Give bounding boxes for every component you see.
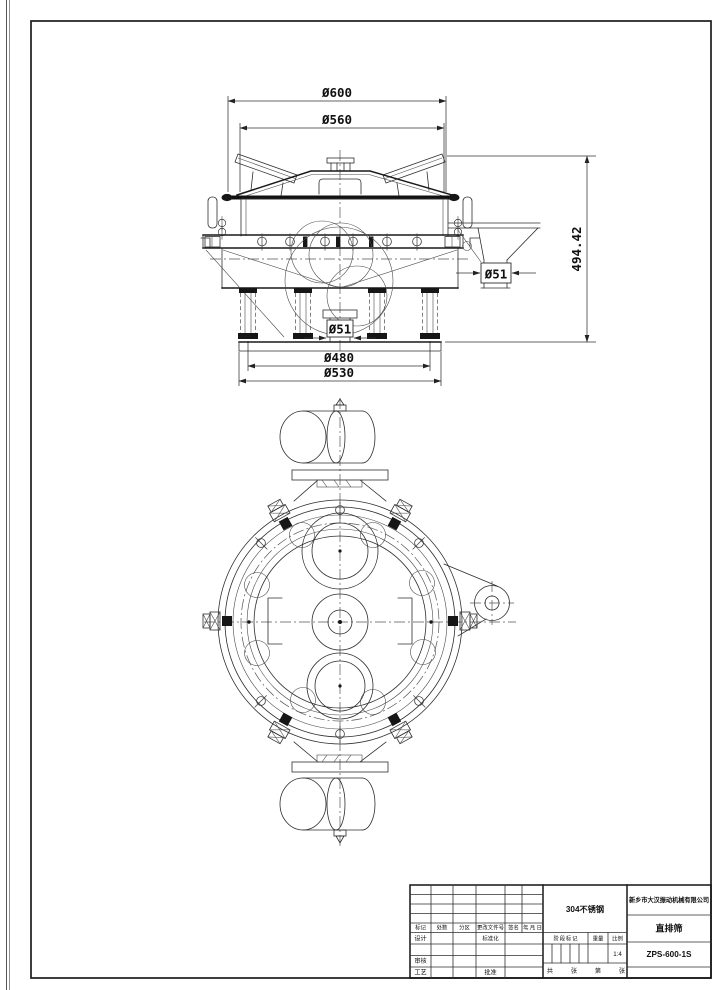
material-text: 304不锈钢 [566,904,604,914]
top-view [203,398,516,846]
rev-header-date: 年、月、日 [523,923,542,931]
drawing-number: ZPS-600-1S [646,950,692,959]
identity-block: 新乡市大汉振动机械有限公司 直排筛 ZPS-600-1S [627,895,711,967]
bottom-outlet: Ø51 [304,310,376,342]
side-clamp-right [454,197,479,247]
right-bracket-mark [398,598,412,644]
dim-overall-height: 494.42 [569,226,584,271]
title-block: 标记 处数 分区 更改文件号 签名 年、月、日 设计 标准化 审核 工艺 批准 … [410,885,711,978]
rev-header-mark: 标记 [415,923,426,931]
material-scale-block: 304不锈钢 阶段标记 重量 比例 1:4 共 张 第 张 [543,904,627,975]
dim-screen-frame: Ø560 [321,112,352,127]
dim-bottom-outlet: Ø51 [328,322,352,337]
rev-header-count: 处数 [437,923,448,931]
cad-drawing: Ø600 Ø560 494.42 Ø480 Ø530 [0,0,720,990]
rev-header-change-doc: 更改文件号 [477,923,505,931]
front-view: Ø600 Ø560 494.42 Ø480 Ø530 [201,85,596,386]
plan-motor-top [280,399,388,501]
label-scale: 比例 [612,934,623,942]
sheet-frame [7,0,712,990]
label-sheet-total-prefix: 共 [547,967,553,975]
label-approve: 批准 [484,969,496,977]
dim-base-outer: Ø530 [323,365,354,380]
plan-motor-bottom [280,742,388,843]
label-sheet-no-suffix: 张 [619,967,626,975]
dim-spring-circle: Ø480 [323,350,354,365]
label-sheet-total-suffix: 张 [571,967,578,975]
label-weight: 重量 [593,934,604,942]
rev-header-signature: 签名 [508,923,519,931]
rev-header-zone: 分区 [459,923,470,931]
label-design: 设计 [414,935,426,943]
label-standardization: 标准化 [482,934,499,942]
revision-table: 标记 处数 分区 更改文件号 签名 年、月、日 设计 标准化 审核 工艺 批准 [410,885,627,978]
label-stage-mark: 阶段标记 [554,934,579,942]
left-bracket-mark [268,598,282,644]
dim-lid-outer: Ø600 [321,85,352,100]
label-process: 工艺 [414,969,426,977]
dim-side-outlet: Ø51 [484,267,508,282]
company-name: 新乡市大汉振动机械有限公司 [629,895,709,904]
label-review: 审核 [414,957,426,965]
dome-lid [222,171,460,201]
scale-value: 1:4 [613,951,622,958]
label-sheet-no-prefix: 第 [595,967,601,975]
product-name: 直排筛 [655,922,682,933]
center-vent [327,158,354,171]
flange-band [203,234,463,251]
drawing-sheet: Ø600 Ø560 494.42 Ø480 Ø530 [0,0,720,990]
